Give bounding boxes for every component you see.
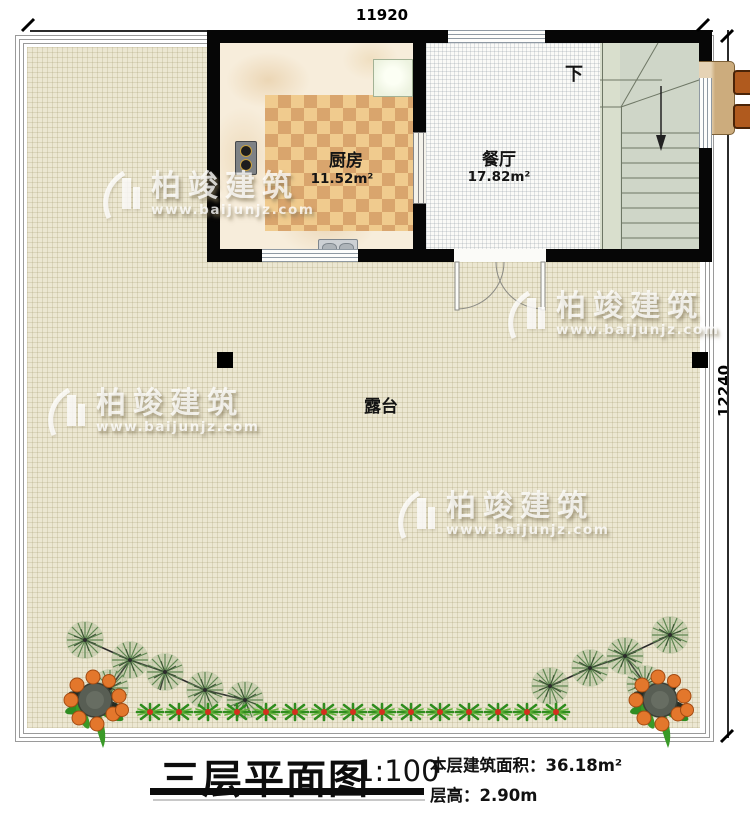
fridge	[373, 59, 413, 97]
floor-height-text: 层高：2.90m	[430, 782, 622, 806]
kitchen-area-label: 11.52m²	[296, 171, 388, 187]
burner-icon	[240, 145, 252, 157]
floor-area-text: 本层建筑面积：36.18m²	[430, 752, 622, 776]
burner-icon	[240, 159, 252, 171]
kitchen-label: 厨房	[300, 146, 392, 171]
plan-scale: 1:100	[356, 754, 440, 788]
stove	[235, 141, 257, 175]
plan-info: 本层建筑面积：36.18m² 层高：2.90m	[430, 752, 622, 806]
chair	[733, 70, 750, 95]
dining-label: 餐厅	[453, 145, 545, 170]
top-dimension-label: 11920	[352, 6, 412, 24]
window	[448, 30, 545, 43]
column	[217, 352, 233, 368]
kitchen-door	[413, 132, 426, 204]
title-underline-shadow	[153, 799, 425, 801]
column	[692, 352, 708, 368]
terrace-door-opening	[454, 249, 546, 262]
window	[699, 78, 712, 148]
stair-landing-band	[600, 43, 620, 249]
plan-title: 三层平面图	[160, 747, 370, 805]
right-dimension-line	[727, 30, 729, 738]
title-underline	[150, 788, 424, 795]
stairs-down-label: 下	[558, 60, 590, 86]
right-dimension-label: 12240	[715, 356, 733, 426]
dining-area-label: 17.82m²	[453, 169, 545, 185]
floor-plan-canvas: 11920 12240	[0, 0, 750, 813]
terrace-label: 露台	[335, 392, 427, 417]
staircase-area	[600, 43, 699, 249]
window	[262, 249, 358, 262]
chair	[733, 104, 750, 129]
